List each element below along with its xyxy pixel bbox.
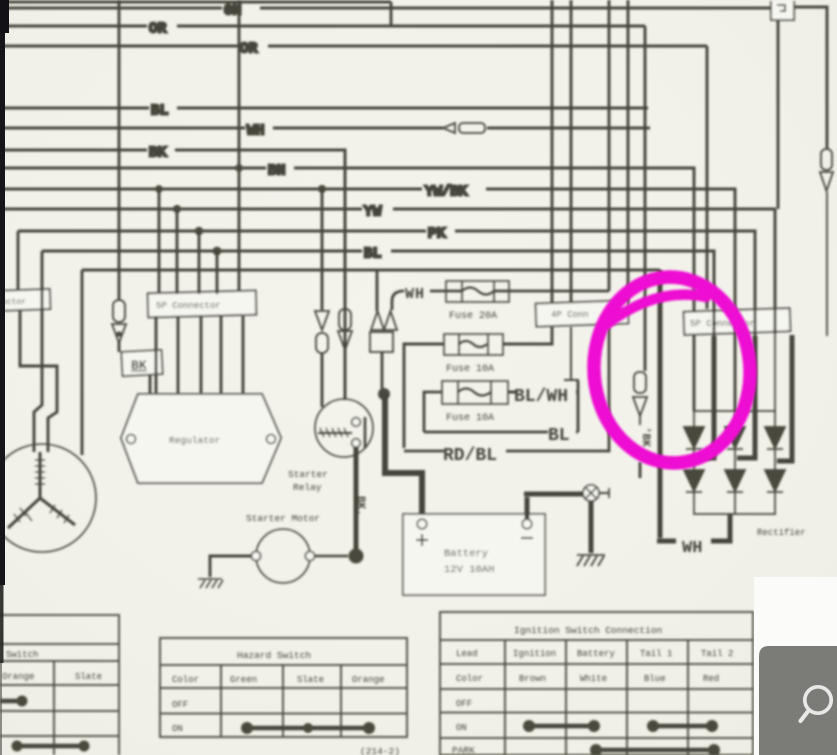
svg-text:Tail 2: Tail 2	[701, 649, 733, 659]
svg-text:BK: BK	[131, 358, 147, 373]
svg-text:Slate: Slate	[297, 675, 324, 685]
svg-text:Hazard Switch: Hazard Switch	[237, 650, 311, 661]
svg-text:ON: ON	[456, 723, 467, 733]
svg-text:(214-2): (214-2)	[360, 746, 400, 755]
svg-text:Fuse 10A: Fuse 10A	[446, 413, 494, 424]
svg-text:ector: ector	[2, 298, 26, 307]
svg-text:Starter Motor: Starter Motor	[246, 513, 320, 524]
svg-text:12V 10AH: 12V 10AH	[444, 564, 494, 576]
svg-text:WH: WH	[682, 539, 702, 558]
svg-text:WH: WH	[247, 123, 265, 139]
svg-text:OR: OR	[240, 41, 258, 57]
svg-text:YW: YW	[364, 204, 382, 220]
svg-text:Battery: Battery	[444, 548, 488, 560]
svg-text:OFF: OFF	[456, 699, 472, 709]
svg-text:ON: ON	[172, 724, 183, 734]
svg-text:Battery: Battery	[577, 649, 615, 659]
svg-text:Color: Color	[456, 674, 483, 684]
svg-text:Green: Green	[230, 675, 257, 685]
svg-text:PK: PK	[428, 226, 446, 242]
svg-text:PARK: PARK	[452, 745, 475, 755]
svg-text:Rectifier: Rectifier	[757, 528, 806, 538]
svg-text:Red: Red	[703, 674, 719, 684]
svg-text:4P Conn: 4P Conn	[551, 310, 589, 320]
svg-text:Orange: Orange	[352, 675, 384, 685]
svg-text:RD/BL: RD/BL	[443, 446, 497, 466]
svg-text:Lead: Lead	[456, 649, 478, 659]
svg-text:BL: BL	[548, 426, 570, 446]
svg-text:Ignition: Ignition	[513, 649, 556, 659]
svg-text:Ignition Switch Connection: Ignition Switch Connection	[514, 625, 662, 636]
svg-text:Fuse 20A: Fuse 20A	[449, 311, 497, 322]
svg-text:Slate: Slate	[75, 672, 102, 682]
svg-text:'BK: 'BK	[639, 427, 651, 447]
svg-text:Blue: Blue	[644, 674, 666, 684]
svg-text:OR: OR	[149, 21, 167, 37]
svg-text:BK: BK	[149, 145, 167, 161]
svg-text:White: White	[580, 674, 607, 684]
svg-text:Switch: Switch	[6, 650, 38, 660]
svg-text:WH: WH	[405, 286, 425, 303]
svg-text:Relay: Relay	[293, 482, 322, 493]
svg-text:Starter: Starter	[288, 469, 328, 480]
svg-text:5P Connector: 5P Connector	[156, 301, 221, 311]
svg-text:BK.: BK.	[354, 496, 366, 516]
svg-text:YW/BK: YW/BK	[425, 184, 468, 200]
svg-text:BL/WH: BL/WH	[514, 387, 568, 407]
svg-text:Fuse 10A: Fuse 10A	[446, 364, 494, 375]
svg-text:BN: BN	[268, 163, 286, 179]
svg-text:BL: BL	[364, 246, 382, 262]
svg-text:Regulator: Regulator	[169, 435, 220, 446]
svg-text:Tail 1: Tail 1	[640, 649, 672, 659]
svg-text:Color: Color	[172, 675, 199, 685]
svg-text:Brown: Brown	[519, 674, 546, 684]
svg-text:OFF: OFF	[172, 700, 188, 710]
svg-text:Orange: Orange	[2, 672, 34, 682]
svg-text:BL: BL	[151, 103, 169, 119]
